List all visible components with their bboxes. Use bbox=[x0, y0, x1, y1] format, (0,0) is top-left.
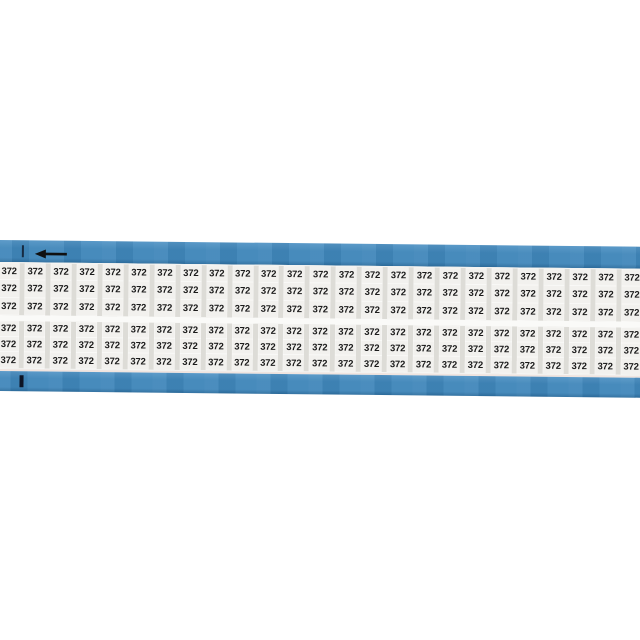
marker-column: 372372372 bbox=[76, 264, 97, 316]
marker-label: 372 bbox=[257, 339, 278, 355]
marker-label: 372 bbox=[205, 339, 226, 355]
marker-label: 372 bbox=[76, 337, 97, 353]
marker-label: 372 bbox=[179, 354, 200, 370]
marker-label: 372 bbox=[621, 287, 640, 305]
marker-column: 372372372 bbox=[413, 325, 434, 372]
marker-label: 372 bbox=[518, 268, 539, 286]
marker-column: 372372372 bbox=[439, 268, 460, 320]
marker-column: 372372372 bbox=[283, 324, 304, 371]
marker-column: 372372372 bbox=[205, 323, 226, 370]
marker-label: 372 bbox=[154, 338, 175, 354]
marker-label: 372 bbox=[517, 286, 538, 304]
marker-label: 372 bbox=[362, 284, 383, 302]
marker-label: 372 bbox=[466, 285, 487, 303]
marker-label: 372 bbox=[621, 304, 640, 322]
marker-label: 372 bbox=[128, 299, 149, 317]
marker-label: 372 bbox=[154, 265, 175, 283]
marker-column: 372372372 bbox=[517, 268, 538, 320]
marker-label: 372 bbox=[154, 299, 175, 317]
marker-label: 372 bbox=[310, 284, 331, 302]
marker-label: 372 bbox=[439, 357, 460, 373]
marker-label: 372 bbox=[153, 354, 174, 370]
marker-label: 372 bbox=[76, 264, 97, 282]
marker-label: 372 bbox=[154, 323, 175, 339]
marker-label: 372 bbox=[465, 357, 486, 373]
marker-label: 372 bbox=[232, 323, 253, 339]
marker-label: 372 bbox=[595, 327, 616, 343]
marker-label: 372 bbox=[24, 281, 45, 299]
marker-label: 372 bbox=[50, 353, 71, 369]
marker-label: 372 bbox=[0, 321, 19, 337]
marker-label: 372 bbox=[491, 326, 512, 342]
marker-column: 372372372 bbox=[154, 265, 175, 317]
marker-column: 372372372 bbox=[284, 266, 305, 318]
marker-label: 372 bbox=[0, 263, 20, 281]
marker-label: 372 bbox=[76, 322, 97, 338]
marker-label: 372 bbox=[595, 287, 616, 305]
marker-label: 372 bbox=[231, 339, 252, 355]
marker-label: 372 bbox=[25, 263, 46, 281]
marker-column: 372372372 bbox=[0, 321, 19, 368]
marker-column: 372372372 bbox=[50, 322, 71, 369]
marker-label: 372 bbox=[128, 338, 149, 354]
marker-label: 372 bbox=[128, 264, 149, 282]
marker-column: 372372372 bbox=[180, 265, 201, 317]
marker-label: 372 bbox=[439, 326, 460, 342]
marker-column: 372372372 bbox=[102, 264, 123, 316]
marker-label: 372 bbox=[388, 284, 409, 302]
marker-label: 372 bbox=[388, 267, 409, 285]
marker-label: 372 bbox=[76, 281, 97, 299]
marker-label: 372 bbox=[258, 324, 279, 340]
registration-mark-icon bbox=[19, 375, 23, 387]
marker-label: 372 bbox=[387, 302, 408, 320]
marker-bank: 3723723723723723723723723723723723723723… bbox=[0, 321, 640, 375]
marker-label: 372 bbox=[543, 286, 564, 304]
marker-column: 372372372 bbox=[543, 269, 564, 321]
marker-label: 372 bbox=[595, 343, 616, 359]
marker-label: 372 bbox=[335, 356, 356, 372]
marker-label: 372 bbox=[309, 324, 330, 340]
marker-column: 372372372 bbox=[309, 324, 330, 371]
marker-label: 372 bbox=[336, 267, 357, 285]
marker-label: 372 bbox=[387, 356, 408, 372]
marker-column: 372372372 bbox=[621, 328, 640, 375]
marker-label: 372 bbox=[50, 322, 71, 338]
marker-label: 372 bbox=[258, 300, 279, 318]
marker-label: 372 bbox=[465, 326, 486, 342]
marker-label: 372 bbox=[206, 323, 227, 339]
marker-label: 372 bbox=[284, 283, 305, 301]
marker-label: 372 bbox=[517, 358, 538, 374]
marker-label: 372 bbox=[335, 340, 356, 356]
marker-label: 372 bbox=[361, 356, 382, 372]
marker-label: 372 bbox=[232, 300, 253, 318]
marker-label: 372 bbox=[491, 303, 512, 321]
marker-label: 372 bbox=[570, 269, 591, 287]
marker-label: 372 bbox=[180, 323, 201, 339]
marker-column: 372372372 bbox=[101, 322, 122, 369]
marker-label: 372 bbox=[0, 298, 19, 316]
marker-label: 372 bbox=[101, 353, 122, 369]
marker-column: 372372372 bbox=[257, 324, 278, 371]
marker-label: 372 bbox=[179, 339, 200, 355]
marker-column: 372372372 bbox=[24, 321, 45, 368]
marker-column: 372372372 bbox=[362, 267, 383, 319]
marker-column: 372372372 bbox=[569, 327, 590, 374]
marker-label: 372 bbox=[387, 325, 408, 341]
marker-label: 372 bbox=[284, 301, 305, 319]
marker-label: 372 bbox=[439, 302, 460, 320]
marker-label: 372 bbox=[310, 301, 331, 319]
marker-column: 372372372 bbox=[491, 268, 512, 320]
marker-label: 372 bbox=[543, 342, 564, 358]
marker-column: 372372372 bbox=[0, 263, 20, 315]
marker-label: 372 bbox=[465, 342, 486, 358]
marker-label: 372 bbox=[206, 300, 227, 318]
marker-column: 372372372 bbox=[439, 326, 460, 373]
marker-label: 372 bbox=[413, 302, 434, 320]
marker-label: 372 bbox=[465, 303, 486, 321]
marker-column: 372372372 bbox=[127, 322, 148, 369]
marker-column: 372372372 bbox=[336, 267, 357, 319]
marker-label: 372 bbox=[24, 321, 45, 337]
marker-label: 372 bbox=[180, 282, 201, 300]
marker-label: 372 bbox=[309, 340, 330, 356]
marker-label: 372 bbox=[231, 355, 252, 371]
marker-label: 372 bbox=[0, 337, 19, 353]
marker-label: 372 bbox=[543, 358, 564, 374]
marker-label: 372 bbox=[414, 267, 435, 285]
marker-label: 372 bbox=[491, 358, 512, 374]
marker-label: 372 bbox=[569, 327, 590, 343]
marker-label: 372 bbox=[413, 325, 434, 341]
marker-label: 372 bbox=[154, 282, 175, 300]
marker-label: 372 bbox=[336, 301, 357, 319]
marker-label: 372 bbox=[517, 326, 538, 342]
marker-label: 372 bbox=[284, 266, 305, 284]
left-arrow-icon bbox=[35, 248, 68, 259]
marker-column: 372372372 bbox=[465, 268, 486, 320]
marker-label: 372 bbox=[466, 268, 487, 286]
marker-grid: 3723723723723723723723723723723723723723… bbox=[0, 262, 640, 376]
marker-column: 372372372 bbox=[206, 265, 227, 317]
marker-label: 372 bbox=[491, 286, 512, 304]
marker-column: 372372372 bbox=[543, 327, 564, 374]
marker-label: 372 bbox=[232, 283, 253, 301]
marker-label: 372 bbox=[361, 340, 382, 356]
marker-column: 372372372 bbox=[517, 326, 538, 373]
marker-label: 372 bbox=[595, 359, 616, 375]
marker-label: 372 bbox=[102, 281, 123, 299]
marker-label: 372 bbox=[205, 355, 226, 371]
marker-label: 372 bbox=[232, 265, 253, 283]
marker-label: 372 bbox=[310, 266, 331, 284]
marker-label: 372 bbox=[128, 282, 149, 300]
marker-label: 372 bbox=[102, 338, 123, 354]
marker-label: 372 bbox=[257, 355, 278, 371]
marker-label: 372 bbox=[309, 356, 330, 372]
marker-column: 372372372 bbox=[231, 323, 252, 370]
marker-label: 372 bbox=[387, 341, 408, 357]
marker-label: 372 bbox=[413, 341, 434, 357]
marker-label: 372 bbox=[50, 281, 71, 299]
marker-label: 372 bbox=[206, 265, 227, 283]
marker-label: 372 bbox=[595, 269, 616, 287]
marker-column: 372372372 bbox=[179, 323, 200, 370]
marker-label: 372 bbox=[180, 300, 201, 318]
marker-label: 372 bbox=[258, 283, 279, 301]
marker-label: 372 bbox=[621, 270, 640, 288]
marker-label: 372 bbox=[76, 353, 97, 369]
marker-label: 372 bbox=[569, 358, 590, 374]
product-photo: 3723723723723723723723723723723723723723… bbox=[0, 0, 640, 640]
marker-label: 372 bbox=[543, 303, 564, 321]
marker-label: 372 bbox=[335, 325, 356, 341]
marker-column: 372372372 bbox=[387, 325, 408, 372]
marker-label: 372 bbox=[283, 324, 304, 340]
marker-column: 372372372 bbox=[595, 269, 616, 321]
marker-label: 372 bbox=[0, 280, 20, 298]
marker-label: 372 bbox=[50, 264, 71, 282]
marker-label: 372 bbox=[128, 322, 149, 338]
marker-label: 372 bbox=[102, 299, 123, 317]
marker-column: 372372372 bbox=[361, 325, 382, 372]
marker-label: 372 bbox=[102, 264, 123, 282]
marker-column: 372372372 bbox=[491, 326, 512, 373]
marker-label: 372 bbox=[517, 342, 538, 358]
marker-label: 372 bbox=[492, 268, 513, 286]
marker-label: 372 bbox=[491, 342, 512, 358]
marker-label: 372 bbox=[440, 268, 461, 286]
marker-label: 372 bbox=[127, 354, 148, 370]
marker-label: 372 bbox=[517, 303, 538, 321]
marker-column: 372372372 bbox=[232, 265, 253, 317]
marker-label: 372 bbox=[180, 265, 201, 283]
marker-label: 372 bbox=[621, 328, 640, 344]
marker-label: 372 bbox=[24, 337, 45, 353]
marker-column: 372372372 bbox=[569, 269, 590, 321]
marker-label: 372 bbox=[283, 355, 304, 371]
marker-label: 372 bbox=[440, 285, 461, 303]
marker-column: 372372372 bbox=[24, 263, 45, 315]
marker-label: 372 bbox=[206, 283, 227, 301]
marker-column: 372372372 bbox=[465, 326, 486, 373]
marker-label: 372 bbox=[258, 266, 279, 284]
marker-label: 372 bbox=[24, 353, 45, 369]
marker-label: 372 bbox=[76, 298, 97, 316]
marker-label: 372 bbox=[283, 340, 304, 356]
marker-column: 372372372 bbox=[621, 270, 640, 322]
marker-label: 372 bbox=[361, 325, 382, 341]
marker-column: 372372372 bbox=[310, 266, 331, 318]
marker-label: 372 bbox=[413, 357, 434, 373]
marker-column: 372372372 bbox=[413, 267, 434, 319]
marker-label: 372 bbox=[543, 327, 564, 343]
marker-label: 372 bbox=[621, 343, 640, 359]
marker-label: 372 bbox=[569, 343, 590, 359]
marker-column: 372372372 bbox=[335, 325, 356, 372]
marker-label: 372 bbox=[544, 269, 565, 287]
marker-column: 372372372 bbox=[128, 264, 149, 316]
marker-label: 372 bbox=[414, 285, 435, 303]
marker-label: 372 bbox=[621, 359, 640, 375]
marker-column: 372372372 bbox=[76, 322, 97, 369]
marker-label: 372 bbox=[362, 301, 383, 319]
marker-label: 372 bbox=[595, 304, 616, 322]
marker-label: 372 bbox=[362, 267, 383, 285]
marker-column: 372372372 bbox=[153, 323, 174, 370]
marker-label: 372 bbox=[439, 341, 460, 357]
marker-label: 372 bbox=[24, 298, 45, 316]
marker-label: 372 bbox=[569, 286, 590, 304]
registration-mark-icon bbox=[22, 245, 24, 257]
marker-column: 372372372 bbox=[595, 327, 616, 374]
marker-label: 372 bbox=[0, 352, 19, 368]
wire-marker-card: 3723723723723723723723723723723723723723… bbox=[0, 240, 640, 398]
marker-label: 372 bbox=[336, 284, 357, 302]
marker-label: 372 bbox=[50, 337, 71, 353]
marker-column: 372372372 bbox=[387, 267, 408, 319]
marker-column: 372372372 bbox=[258, 266, 279, 318]
marker-label: 372 bbox=[50, 298, 71, 316]
marker-bank: 3723723723723723723723723723723723723723… bbox=[0, 263, 640, 322]
marker-column: 372372372 bbox=[50, 264, 71, 316]
marker-label: 372 bbox=[102, 322, 123, 338]
marker-label: 372 bbox=[569, 304, 590, 322]
